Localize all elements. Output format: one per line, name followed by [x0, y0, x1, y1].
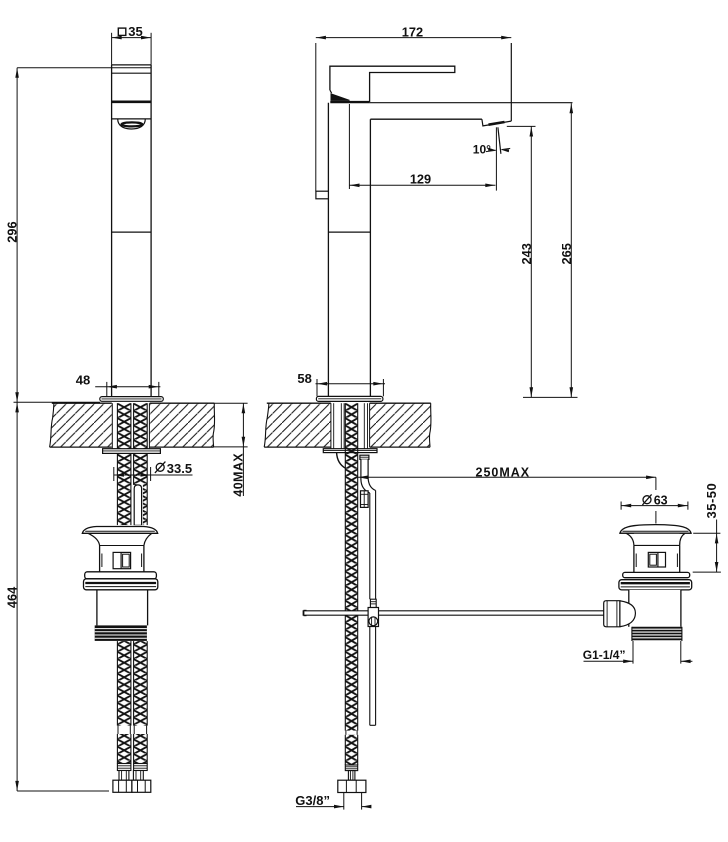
svg-text:58: 58 — [297, 371, 311, 386]
svg-text:129: 129 — [410, 172, 431, 187]
svg-text:63: 63 — [654, 494, 668, 508]
svg-text:265: 265 — [559, 243, 574, 264]
svg-text:48: 48 — [76, 373, 90, 388]
svg-text:35: 35 — [128, 24, 142, 39]
svg-text:172: 172 — [402, 24, 423, 39]
svg-text:G1-1/4”: G1-1/4” — [583, 648, 626, 662]
svg-text:33.5: 33.5 — [167, 461, 192, 476]
svg-text:G3/8”: G3/8” — [295, 793, 330, 808]
svg-text:464: 464 — [5, 586, 20, 608]
svg-text:10°: 10° — [473, 142, 491, 156]
svg-text:296: 296 — [5, 221, 20, 242]
svg-text:243: 243 — [519, 243, 534, 264]
svg-text:40MAX: 40MAX — [231, 453, 245, 497]
svg-text:35-50: 35-50 — [704, 483, 719, 519]
svg-text:250MAX: 250MAX — [476, 465, 531, 479]
